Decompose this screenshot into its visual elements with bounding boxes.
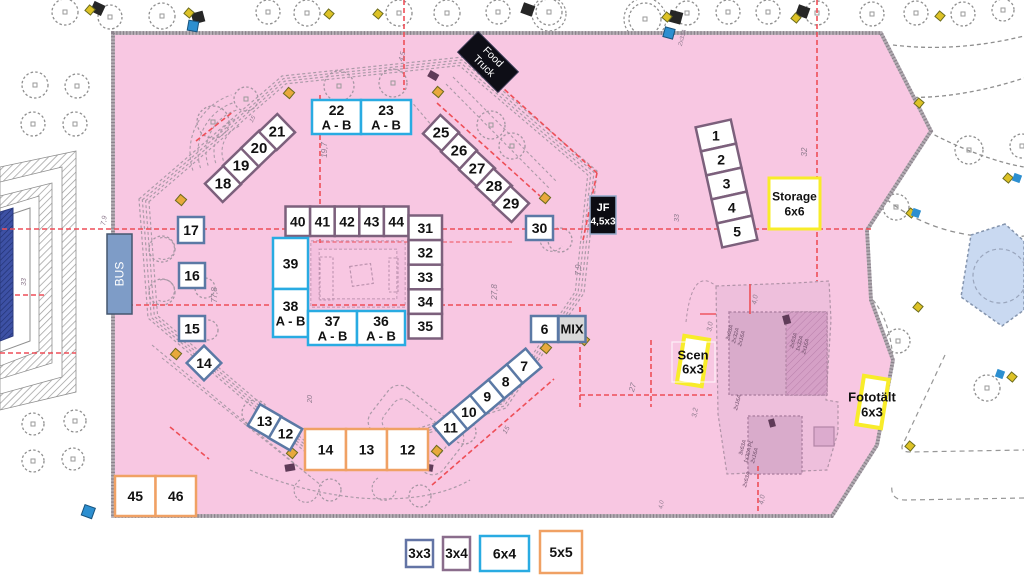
svg-text:JF: JF [597, 202, 610, 214]
svg-text:33: 33 [674, 214, 681, 222]
svg-text:31: 31 [417, 220, 433, 236]
svg-text:29: 29 [503, 196, 520, 213]
svg-text:5: 5 [733, 224, 741, 240]
svg-text:A - B: A - B [366, 329, 396, 344]
svg-text:43: 43 [364, 213, 380, 229]
svg-text:34: 34 [417, 294, 433, 310]
svg-text:46: 46 [168, 488, 184, 504]
svg-text:A - B: A - B [322, 118, 352, 133]
svg-text:5x5: 5x5 [549, 544, 573, 560]
svg-text:14: 14 [318, 442, 334, 458]
svg-text:Storage: Storage [772, 190, 817, 204]
svg-text:4,5x3: 4,5x3 [590, 217, 615, 228]
svg-text:6x3: 6x3 [861, 405, 883, 420]
svg-text:A - B: A - B [318, 329, 348, 344]
svg-text:A - B: A - B [371, 118, 401, 133]
svg-text:Fototält: Fototält [848, 390, 896, 405]
svg-text:20: 20 [251, 140, 268, 157]
svg-text:13: 13 [257, 413, 273, 429]
svg-text:11: 11 [443, 420, 458, 436]
svg-text:26: 26 [451, 143, 468, 160]
svg-text:39: 39 [283, 256, 299, 272]
svg-text:1: 1 [712, 128, 720, 144]
svg-text:7: 7 [520, 358, 528, 374]
svg-text:42: 42 [339, 213, 355, 229]
svg-text:16: 16 [184, 268, 200, 284]
svg-text:36: 36 [373, 313, 389, 329]
svg-text:41: 41 [315, 213, 331, 229]
svg-text:19,7: 19,7 [320, 142, 329, 158]
svg-text:33: 33 [417, 269, 433, 285]
svg-text:A - B: A - B [276, 314, 306, 329]
svg-text:12: 12 [400, 442, 416, 458]
svg-text:8: 8 [502, 373, 510, 389]
svg-text:27: 27 [469, 161, 486, 178]
svg-text:35: 35 [417, 318, 433, 334]
svg-text:15: 15 [184, 321, 200, 337]
svg-text:6x6: 6x6 [784, 205, 804, 219]
svg-text:38: 38 [283, 298, 299, 314]
svg-text:18: 18 [215, 176, 232, 193]
svg-text:44: 44 [388, 213, 404, 229]
svg-text:33: 33 [21, 278, 28, 286]
svg-text:23: 23 [378, 102, 394, 118]
svg-text:3: 3 [723, 176, 731, 192]
svg-text:9: 9 [483, 389, 491, 405]
svg-text:20: 20 [307, 395, 314, 404]
svg-text:25: 25 [433, 125, 450, 142]
svg-text:3x3: 3x3 [408, 546, 431, 561]
svg-text:32: 32 [800, 147, 809, 156]
svg-text:3x4: 3x4 [445, 546, 468, 561]
svg-text:77,8: 77,8 [210, 287, 219, 303]
svg-text:37: 37 [325, 313, 341, 329]
svg-text:7,9: 7,9 [574, 264, 583, 276]
svg-text:6x3: 6x3 [682, 362, 704, 377]
svg-text:17: 17 [183, 222, 199, 238]
svg-text:27,8: 27,8 [490, 284, 499, 301]
svg-text:Scen: Scen [677, 348, 708, 363]
svg-text:13: 13 [359, 442, 375, 458]
svg-text:30: 30 [532, 220, 548, 236]
svg-text:28: 28 [486, 178, 503, 195]
svg-text:2: 2 [717, 152, 725, 168]
svg-text:14: 14 [196, 355, 212, 371]
svg-text:4: 4 [728, 200, 736, 216]
svg-text:6: 6 [541, 321, 549, 337]
svg-text:19: 19 [233, 158, 250, 175]
svg-text:22: 22 [329, 102, 345, 118]
svg-text:BUS: BUS [113, 262, 127, 287]
svg-text:32: 32 [417, 244, 433, 260]
svg-text:10: 10 [461, 404, 477, 420]
svg-text:40: 40 [290, 213, 306, 229]
svg-text:21: 21 [269, 124, 286, 141]
svg-text:6x4: 6x4 [493, 546, 517, 562]
svg-text:12: 12 [278, 426, 294, 442]
svg-text:MIX: MIX [560, 322, 583, 337]
svg-text:45: 45 [127, 488, 143, 504]
